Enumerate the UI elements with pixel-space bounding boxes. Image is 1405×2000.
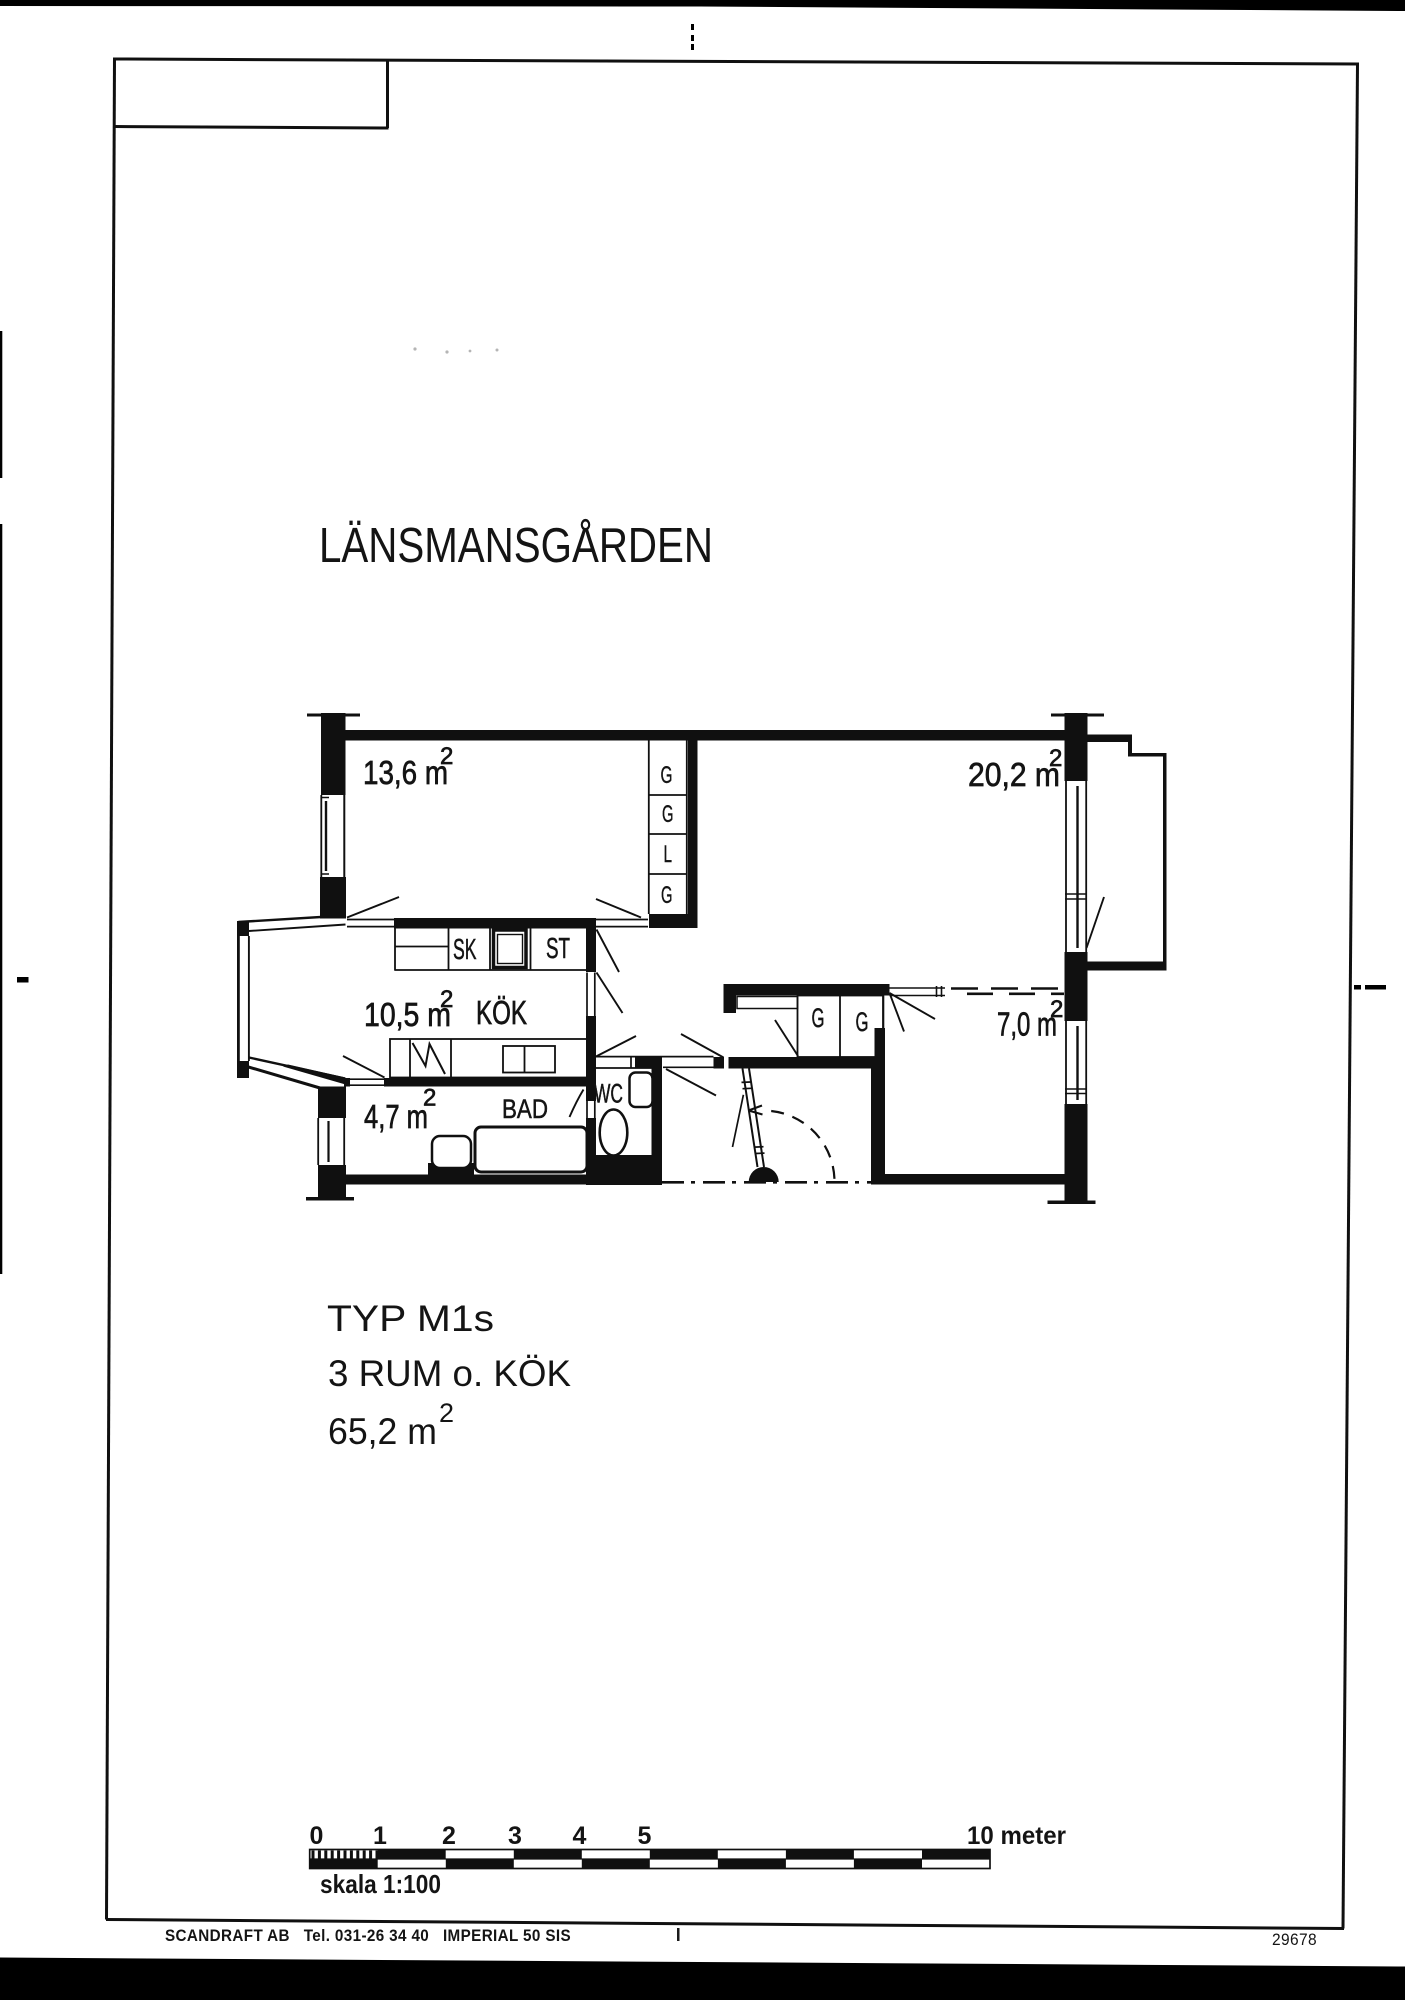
svg-text:3: 3 [508, 1822, 522, 1850]
svg-text:7,0 m: 7,0 m [997, 1007, 1057, 1044]
svg-text:G: G [812, 1003, 825, 1033]
svg-text:2: 2 [1050, 996, 1063, 1023]
svg-text:4: 4 [573, 1822, 587, 1850]
svg-text:2: 2 [439, 1398, 454, 1428]
svg-text:10,5 m: 10,5 m [364, 997, 451, 1034]
svg-text:SCANDRAFT AB Tel. 031-26 34: SCANDRAFT AB Tel. 031-26 34 40 IMPERIAL … [165, 1927, 571, 1945]
svg-text:5: 5 [638, 1822, 652, 1850]
svg-text:65,2 m: 65,2 m [328, 1410, 437, 1452]
svg-text:KÖK: KÖK [476, 995, 527, 1032]
svg-text:G: G [856, 1007, 869, 1037]
svg-text:2: 2 [440, 986, 453, 1013]
svg-text:0: 0 [310, 1822, 324, 1850]
svg-text:3 RUM o. KÖK: 3 RUM o. KÖK [328, 1352, 571, 1394]
svg-text:BAD: BAD [502, 1094, 548, 1124]
svg-text:SK: SK [453, 934, 477, 966]
svg-text:2: 2 [440, 743, 453, 770]
svg-text:2: 2 [442, 1822, 456, 1850]
svg-text:10 meter: 10 meter [967, 1822, 1066, 1850]
svg-text:4,7 m: 4,7 m [364, 1099, 428, 1136]
svg-text:2: 2 [423, 1085, 436, 1112]
svg-text:G: G [661, 762, 673, 789]
svg-text:ST: ST [546, 933, 570, 965]
svg-text:29678: 29678 [1272, 1930, 1317, 1949]
svg-text:13,6 m: 13,6 m [363, 755, 448, 792]
svg-text:LÄNSMANSGÅRDEN: LÄNSMANSGÅRDEN [319, 519, 713, 573]
svg-text:2: 2 [1049, 745, 1062, 772]
svg-text:TYP M1s: TYP M1s [327, 1297, 494, 1339]
svg-text:L: L [664, 841, 673, 868]
svg-text:1: 1 [373, 1822, 387, 1850]
svg-text:skala 1:100: skala 1:100 [320, 1869, 441, 1899]
svg-text:WC: WC [594, 1079, 623, 1109]
svg-text:20,2 m: 20,2 m [968, 757, 1060, 794]
svg-text:G: G [661, 882, 673, 909]
svg-text:G: G [662, 801, 674, 828]
